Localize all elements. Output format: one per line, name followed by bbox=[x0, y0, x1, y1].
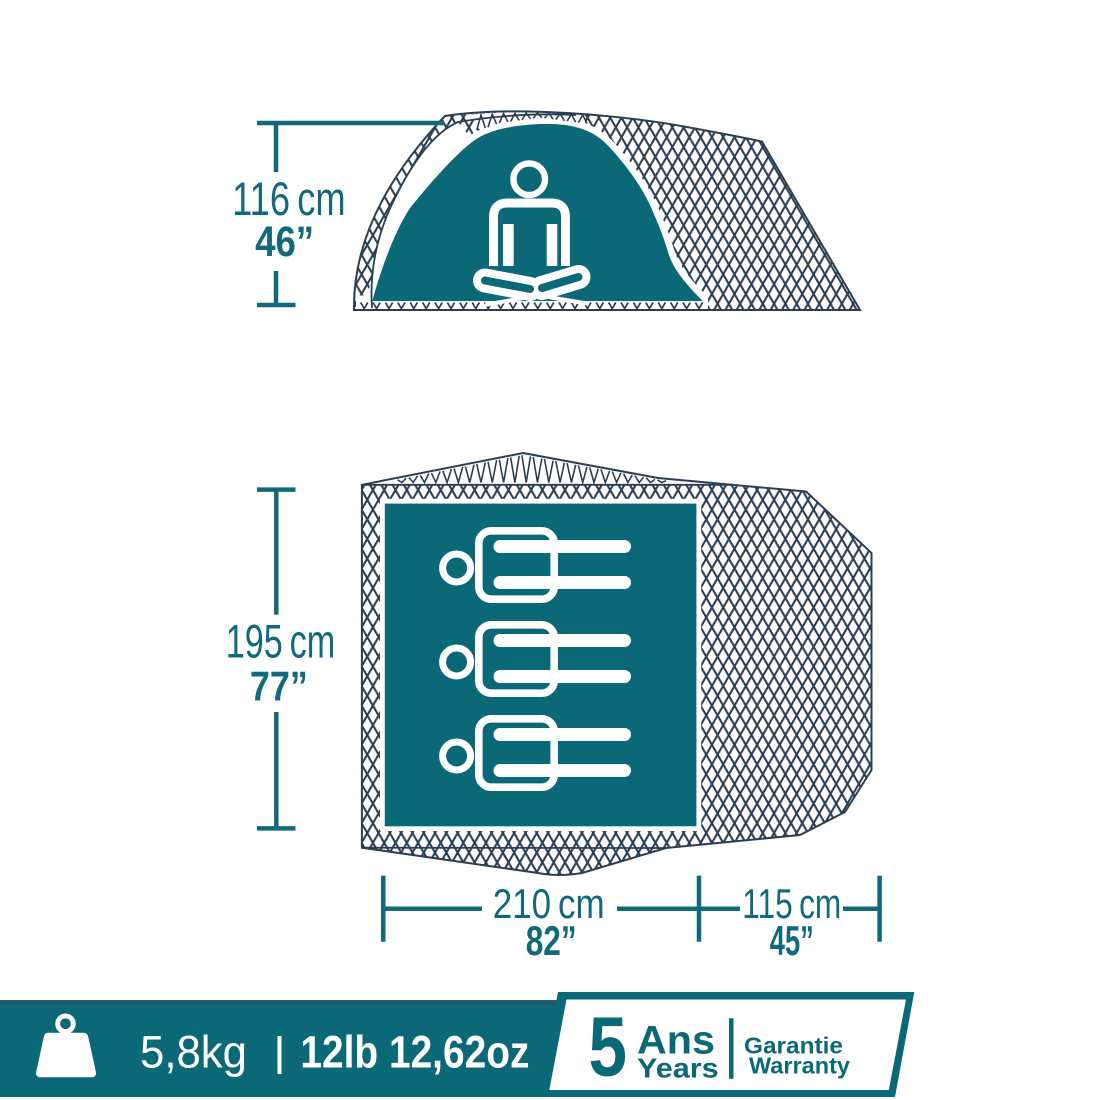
svg-text:195 cm: 195 cm bbox=[226, 615, 336, 668]
svg-text:5,8kg: 5,8kg bbox=[140, 1027, 247, 1078]
svg-text:46”: 46” bbox=[255, 218, 314, 266]
svg-text:45”: 45” bbox=[770, 917, 814, 964]
svg-text:Warranty: Warranty bbox=[749, 1053, 850, 1079]
svg-text:82”: 82” bbox=[526, 917, 577, 964]
svg-text:5: 5 bbox=[589, 1000, 628, 1094]
svg-text:77”: 77” bbox=[250, 663, 308, 710]
svg-text:Years: Years bbox=[637, 1053, 719, 1084]
svg-text:12lb 12,62oz: 12lb 12,62oz bbox=[300, 1027, 529, 1078]
